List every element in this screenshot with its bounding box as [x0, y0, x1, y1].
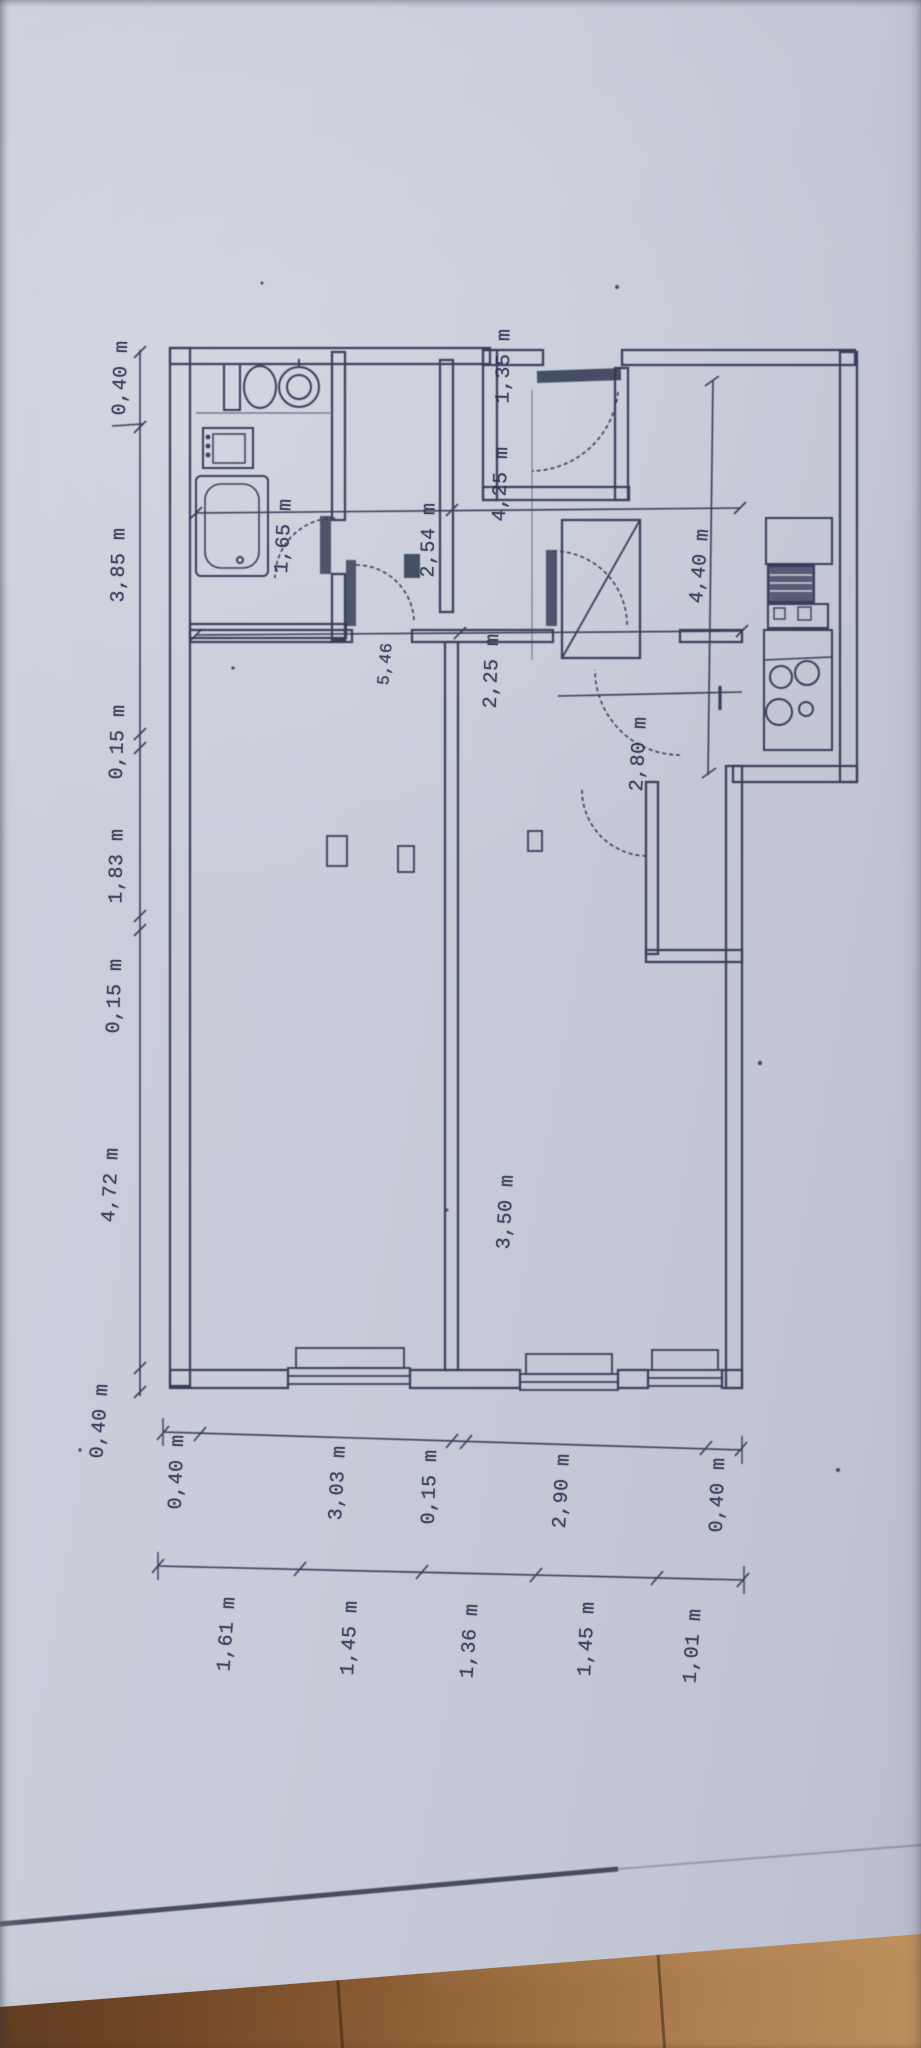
storage-door-arc: [582, 790, 648, 856]
washing-machine: [203, 428, 253, 468]
washer-knob: [207, 454, 210, 457]
wall-top-left: [170, 348, 490, 364]
dim-line-interior-2: [196, 631, 742, 635]
wall-top-entry-b: [622, 350, 855, 365]
washbasin-inner: [287, 375, 311, 399]
dim-label: 2,90 m: [547, 1440, 578, 1541]
paper-fold-line: [0, 1869, 618, 1924]
dim-line-interior-1: [196, 508, 740, 513]
wall-right-wing: [840, 352, 857, 782]
room1-door-arc: [356, 565, 414, 623]
burner: [766, 699, 792, 725]
door-threshold: [404, 554, 420, 578]
dim-tick: [112, 424, 142, 426]
kitchen-drawers: [768, 604, 828, 628]
dim-ticks: [190, 625, 748, 641]
wall-lower-rooms-divider: [445, 642, 458, 1370]
wall-storage-bottom: [646, 950, 742, 962]
dim-label-hall: 2,54 m: [416, 490, 444, 590]
radiator: [398, 846, 414, 872]
wall-bath-bottom: [190, 624, 346, 638]
sink-basin: [770, 666, 792, 688]
dim-label-kitchen-w: 2,80 m: [624, 703, 655, 804]
dim-label: 1,45 m: [335, 1587, 366, 1688]
dim-label: 1,45 m: [572, 1588, 603, 1689]
wall-wing-bottom: [733, 766, 857, 782]
dim-label: 0,40 m: [85, 1370, 118, 1472]
toilet-tank: [224, 364, 240, 410]
room1-door-leaf: [346, 560, 356, 626]
wall-vestibule-left: [483, 350, 497, 500]
interior-walls: [190, 350, 742, 1370]
dim-label: 0,15 m: [416, 1437, 445, 1538]
stove-hatch: [770, 575, 812, 591]
dim-label-room-bottom: 3,50 m: [491, 1161, 522, 1262]
bathtub-drain: [237, 557, 243, 563]
dim-label: 1,61 m: [212, 1583, 245, 1685]
dim-label-kitchen-l: 4,40 m: [684, 515, 719, 617]
sink-divider: [764, 657, 832, 660]
dim-line-bottom-inner: [158, 1566, 744, 1580]
window: [520, 1374, 618, 1390]
bath-door-arc: [275, 518, 335, 578]
wall-bottom-c: [618, 1370, 648, 1388]
wall-vestibule-bottom: [483, 487, 629, 500]
dim-ticks: [702, 376, 719, 778]
stove: [768, 566, 814, 602]
entry-door-leaf: [537, 368, 621, 383]
window: [648, 1370, 722, 1386]
dim-label: 0,15 m: [104, 692, 133, 793]
dim-label: 1,83 m: [104, 816, 132, 916]
dim-ticks-bottom-outer: [157, 1426, 747, 1456]
window: [288, 1368, 410, 1384]
dim-label: 0,40 m: [107, 328, 136, 429]
drawer-knob: [774, 608, 785, 619]
radiator: [528, 831, 542, 851]
window-sill: [526, 1354, 612, 1374]
washing-machine-door: [213, 434, 245, 463]
kitchen-counter: [766, 518, 832, 564]
floor-plan-drawing: [0, 0, 921, 2048]
dim-label-hall-b: 2,25 m: [478, 621, 507, 722]
toilet-bowl: [244, 366, 276, 408]
dim-label: 0,40 m: [163, 1422, 192, 1523]
outer-walls: [170, 348, 857, 1388]
paper-sheet: 0,40 m 3,85 m 0,15 m 1,83 m 0,15 m 4,72 …: [0, 0, 921, 2048]
dim-ends: [163, 1418, 742, 1464]
dim-ends: [158, 1552, 744, 1594]
room3-door-arc: [595, 670, 680, 755]
dim-line-kitchen-w: [558, 692, 742, 696]
dim-label-room-top: 4,25 m: [487, 434, 516, 535]
entry-door-arc: [532, 392, 618, 471]
wall-hall-divider: [440, 360, 453, 612]
washer-knob: [207, 445, 210, 448]
window-sill: [296, 1348, 404, 1368]
wall-hall-bottom-b: [412, 630, 553, 642]
bath-door-leaf: [320, 516, 331, 574]
floor-plan-photo: 0,40 m 3,85 m 0,15 m 1,83 m 0,15 m 4,72 …: [0, 0, 921, 2048]
wardrobe-diagonal: [562, 520, 640, 658]
washbasin: [279, 367, 319, 407]
window-sill: [652, 1350, 718, 1370]
wall-top-entry-a: [483, 350, 543, 365]
dim-ticks-bottom-inner: [152, 1559, 749, 1587]
washer-knob: [207, 436, 210, 439]
wall-kitchen-divider: [615, 368, 628, 500]
dim-line-bottom-outer: [163, 1432, 742, 1450]
wall-bath-right-b: [332, 574, 345, 640]
dim-label: 4,72 m: [96, 1134, 127, 1235]
dim-label: 0,15 m: [101, 946, 130, 1047]
doors: [275, 368, 680, 856]
wall-bottom-b: [410, 1370, 520, 1388]
bathtub: [196, 476, 268, 576]
wall-bath-right-a: [332, 352, 345, 520]
dim-label-door: 5,46: [370, 613, 405, 715]
bathtub-inner: [205, 484, 259, 568]
dim-label: 3,85 m: [106, 515, 134, 615]
furniture: [327, 520, 640, 872]
windows: [288, 1348, 722, 1390]
paper-fold-line-faint: [618, 1845, 921, 1869]
bathroom-fixtures: [196, 359, 330, 576]
wall-storage-left: [646, 782, 658, 954]
dimension-lines: [112, 346, 749, 1594]
burner: [799, 702, 813, 716]
dim-ticks: [190, 502, 746, 519]
kitchen-fixtures: [764, 518, 832, 750]
dim-label-vestibule: 1,35 m: [491, 316, 519, 416]
dim-label-bath: 1,65 m: [269, 485, 300, 586]
dim-label: 0,40 m: [704, 1445, 733, 1546]
dim-line-kitchen-l: [708, 380, 713, 775]
sink-basin: [795, 661, 819, 685]
wall-left: [170, 348, 190, 1386]
wardrobe: [562, 520, 640, 658]
kitchen-sink-unit: [764, 630, 832, 750]
radiator: [327, 836, 347, 866]
wall-hall-bottom-c: [680, 630, 742, 642]
dim-label: 1,36 m: [455, 1590, 488, 1692]
room2-door-leaf: [546, 550, 557, 626]
wall-right-main: [726, 766, 742, 1388]
dim-ticks-left: [134, 346, 146, 1398]
wall-bottom-a: [170, 1370, 288, 1388]
room2-door-arc: [553, 551, 627, 625]
wall-hall-bottom-a: [190, 630, 352, 642]
dim-label: 1,01 m: [678, 1595, 711, 1697]
dim-label: 3,03 m: [323, 1432, 354, 1533]
wall-bottom-d: [722, 1370, 742, 1388]
specks: [78, 282, 840, 1967]
drawer-knob: [798, 607, 811, 620]
